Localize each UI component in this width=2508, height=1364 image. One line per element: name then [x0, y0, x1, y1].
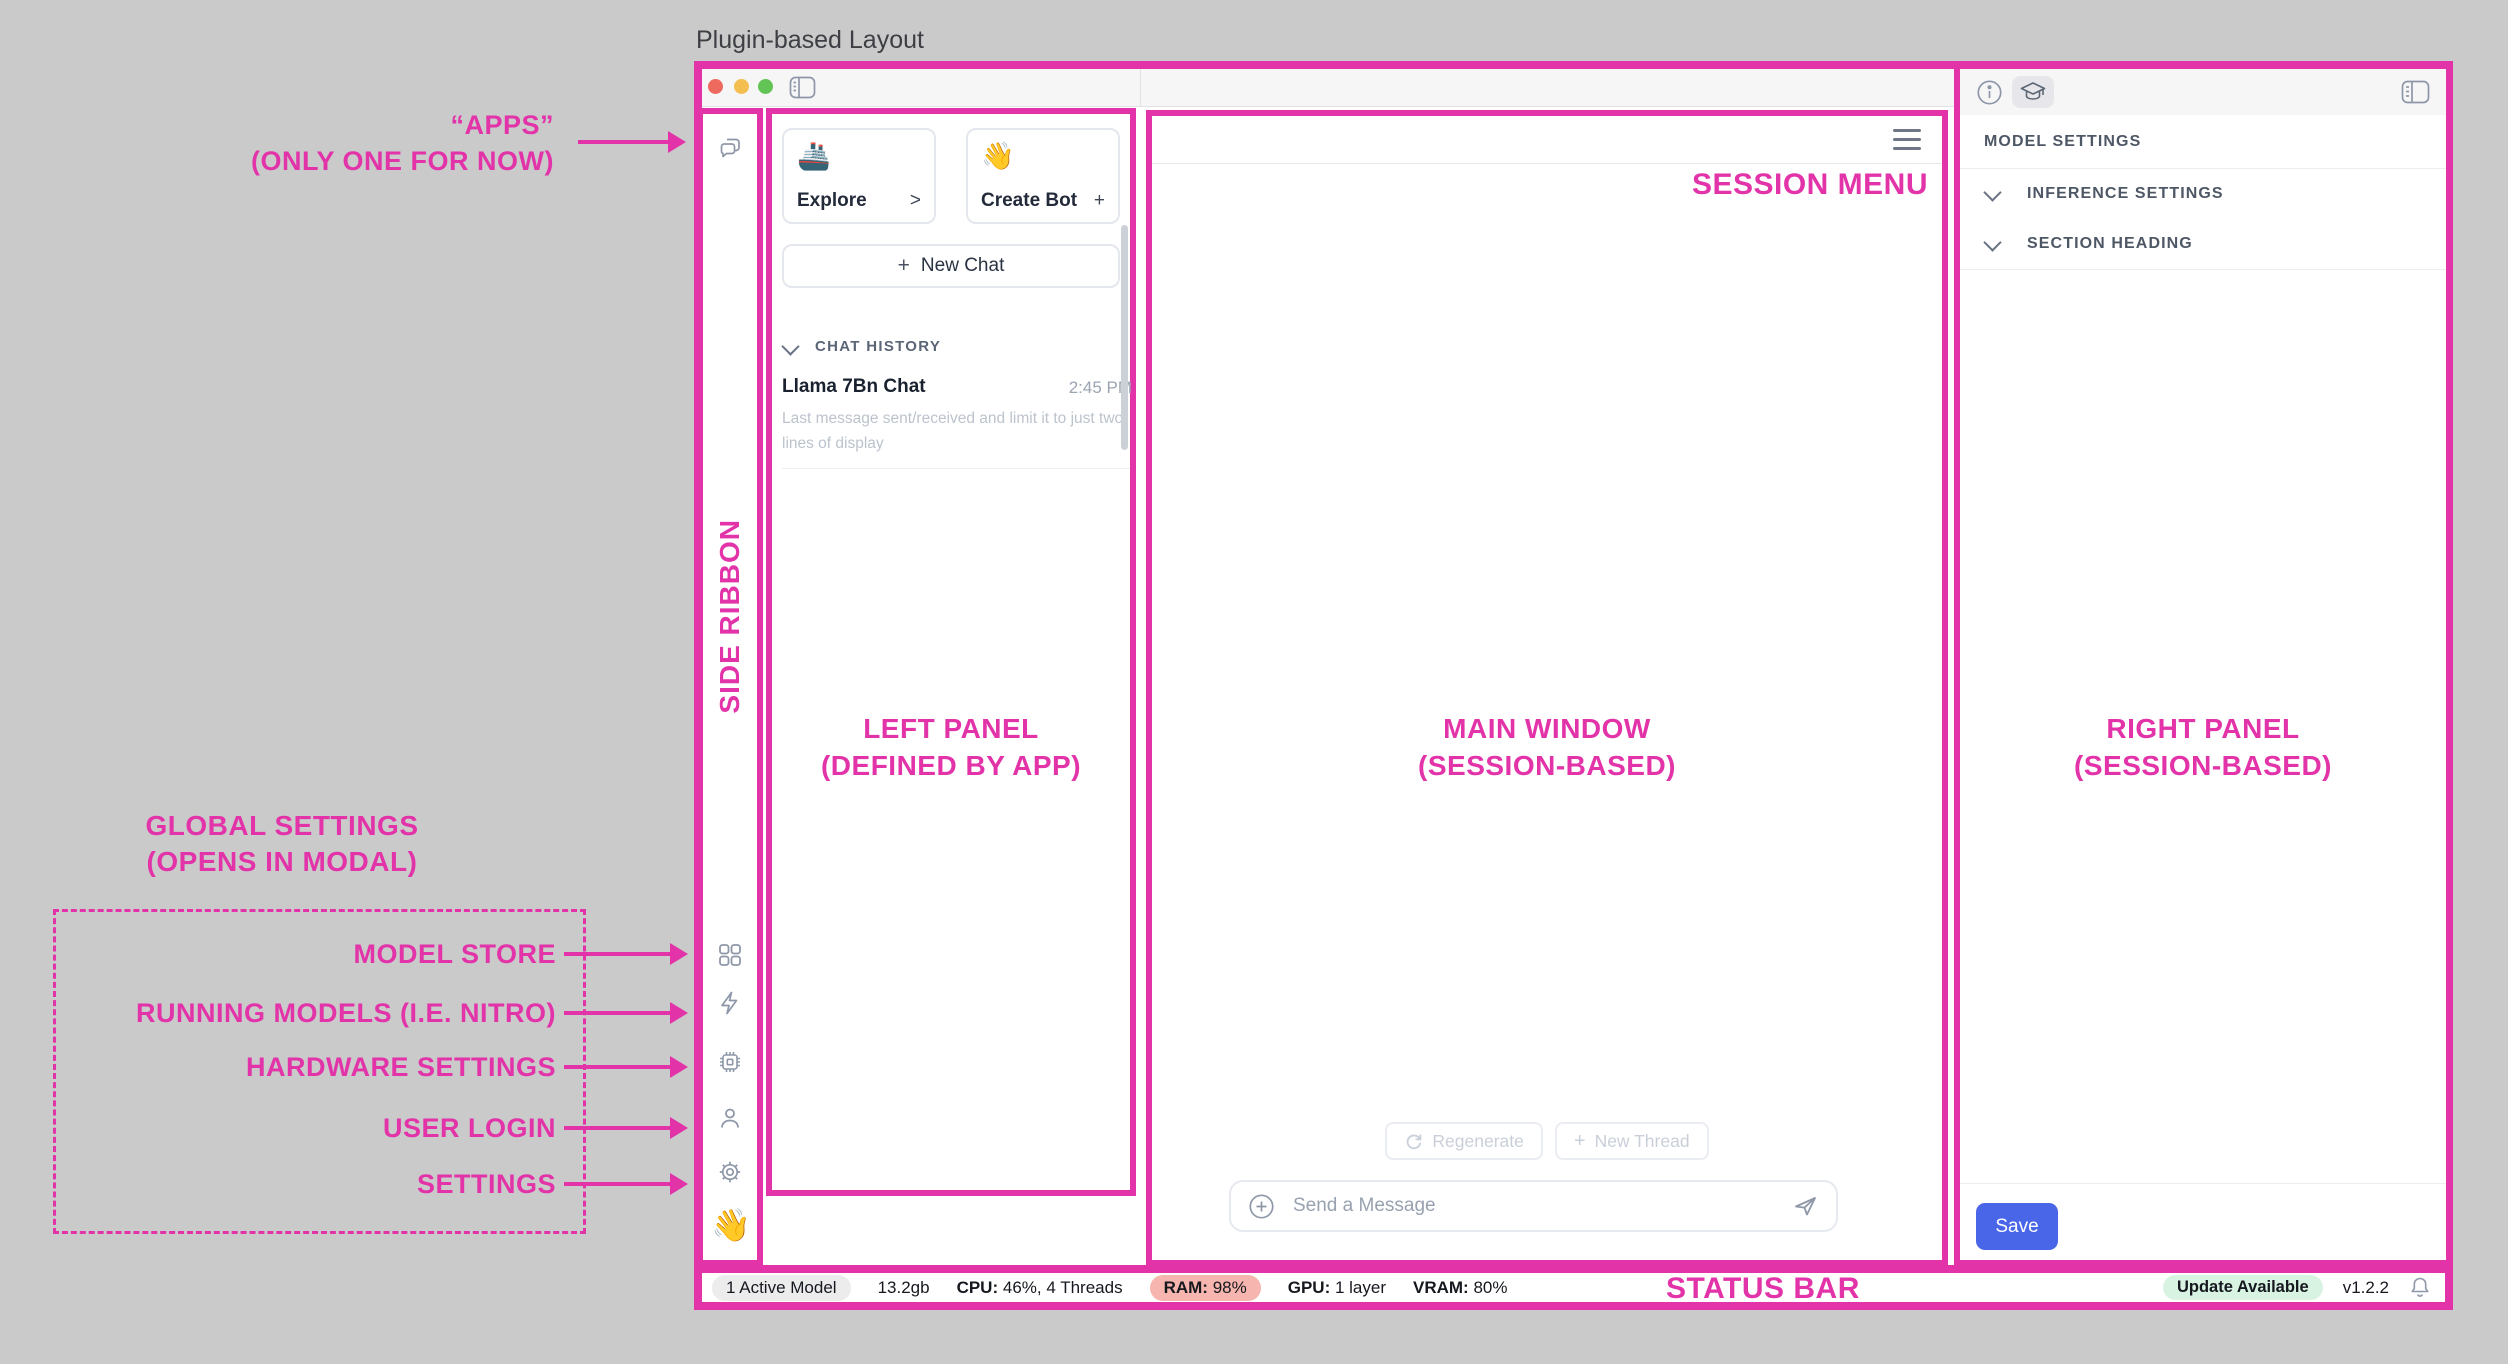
annotation-arrow-head — [670, 1117, 688, 1139]
graduation-cap-icon — [2019, 80, 2047, 104]
annotation-arrow-head — [670, 1056, 688, 1078]
app-window: SIDE RIBBON — [694, 61, 2453, 1310]
divider — [1960, 1183, 2446, 1184]
running-models-annotation: RUNNING MODELS (I.E. NITRO) — [60, 996, 556, 1030]
main-window-annotation: MAIN WINDOW (SESSION-BASED) — [1152, 710, 1942, 784]
create-bot-card-plus: + — [1094, 190, 1105, 212]
annotation-arrow — [564, 1065, 672, 1069]
new-chat-button[interactable]: + New Chat — [782, 244, 1120, 288]
model-settings-tab[interactable] — [2012, 76, 2054, 108]
annotation-arrow — [564, 1011, 672, 1015]
annotated-mockup: Plugin-based Layout — [0, 0, 2508, 1364]
session-menu-bar — [1152, 116, 1942, 164]
annotation-arrow-head — [670, 943, 688, 965]
side-ribbon-annotation: SIDE RIBBON — [703, 502, 757, 730]
wave-emoji-icon: 👋 — [981, 140, 1105, 172]
section-heading-row[interactable]: SECTION HEADING — [1960, 219, 2446, 270]
model-settings-title: MODEL SETTINGS — [1984, 133, 2141, 151]
user-login-annotation: USER LOGIN — [60, 1111, 556, 1145]
settings-annotation: SETTINGS — [60, 1167, 556, 1201]
apps-annotation: “APPS” (ONLY ONE FOR NOW) — [150, 107, 554, 179]
chevron-down-icon — [781, 337, 799, 355]
chat-app-icon[interactable] — [717, 135, 743, 161]
annotation-arrow-head — [670, 1173, 688, 1195]
create-bot-card[interactable]: 👋 Create Bot + — [966, 128, 1120, 224]
traffic-close-button[interactable] — [708, 79, 723, 94]
gpu-stat: GPU: 1 layer — [1288, 1278, 1386, 1298]
plus-icon: + — [898, 254, 910, 278]
annotation-arrow-head — [670, 1002, 688, 1024]
apps-arrow — [578, 140, 670, 144]
traffic-zoom-button[interactable] — [758, 79, 773, 94]
cpu-stat: CPU: 46%, 4 Threads — [957, 1278, 1123, 1298]
inference-settings-label: INFERENCE SETTINGS — [2027, 185, 2224, 203]
plus-icon: + — [1574, 1130, 1586, 1153]
message-input[interactable] — [1291, 1194, 1775, 1218]
vram-stat: VRAM: 80% — [1413, 1278, 1507, 1298]
session-menu-annotation: SESSION MENU — [1692, 168, 1928, 202]
right-panel-annotation: RIGHT PANEL (SESSION-BASED) — [1960, 710, 2446, 784]
section-heading-label: SECTION HEADING — [2027, 235, 2193, 253]
hamburger-menu-icon[interactable] — [1893, 129, 1921, 150]
info-icon[interactable] — [1976, 79, 2003, 106]
right-panel-header — [1960, 69, 2446, 116]
message-composer — [1229, 1180, 1838, 1232]
global-settings-annotation: GLOBAL SETTINGS (OPENS IN MODAL) — [104, 808, 460, 880]
model-store-icon[interactable] — [717, 942, 743, 968]
chevron-down-icon — [1983, 183, 2001, 201]
ship-emoji-icon: 🚢 — [797, 140, 921, 172]
new-thread-label: New Thread — [1595, 1131, 1690, 1152]
chat-list-item[interactable]: Llama 7Bn Chat 2:45 PM Last message sent… — [772, 366, 1142, 468]
chevron-down-icon — [1983, 233, 2001, 251]
annotation-arrow — [564, 952, 672, 956]
chat-history-label: CHAT HISTORY — [815, 338, 941, 355]
model-settings-section: MODEL SETTINGS — [1960, 115, 2446, 169]
left-panel-scrollbar[interactable] — [1121, 225, 1128, 450]
new-chat-label: New Chat — [921, 255, 1004, 277]
list-divider — [782, 468, 1130, 469]
chat-item-preview: Last message sent/received and limit it … — [782, 406, 1142, 456]
running-models-icon[interactable] — [717, 990, 743, 1016]
panel-toggle-icon[interactable] — [2401, 80, 2430, 104]
right-panel: MODEL SETTINGS INFERENCE SETTINGS SECTIO… — [1954, 63, 2452, 1266]
notifications-bell-icon[interactable] — [2409, 1276, 2431, 1300]
main-window: SESSION MENU MAIN WINDOW (SESSION-BASED)… — [1146, 110, 1948, 1266]
settings-gear-icon[interactable] — [717, 1159, 743, 1185]
ram-badge: RAM: 98% — [1150, 1275, 1261, 1301]
save-button[interactable]: Save — [1976, 1203, 2058, 1250]
explore-card-chevron: > — [910, 190, 921, 212]
regenerate-button[interactable]: Regenerate — [1385, 1122, 1542, 1160]
annotation-arrow — [564, 1182, 672, 1186]
chat-item-title: Llama 7Bn Chat — [782, 376, 926, 398]
traffic-minimize-button[interactable] — [734, 79, 749, 94]
attach-plus-icon[interactable] — [1248, 1193, 1275, 1220]
regenerate-label: Regenerate — [1432, 1131, 1523, 1152]
status-bar: 1 Active Model 13.2gb CPU: 46%, 4 Thread… — [702, 1273, 2445, 1302]
titlebar-divider — [1140, 69, 1141, 106]
app-version: v1.2.2 — [2343, 1278, 2389, 1298]
left-panel-annotation: LEFT PANEL (DEFINED BY APP) — [772, 710, 1130, 784]
create-bot-card-label: Create Bot — [981, 190, 1077, 212]
hardware-settings-icon[interactable] — [717, 1049, 743, 1075]
user-login-icon[interactable] — [717, 1105, 743, 1131]
page-title: Plugin-based Layout — [696, 26, 924, 55]
inference-settings-row[interactable]: INFERENCE SETTINGS — [1960, 169, 2446, 220]
explore-card[interactable]: 🚢 Explore > — [782, 128, 936, 224]
active-model-badge: 1 Active Model — [712, 1275, 851, 1301]
model-store-annotation: MODEL STORE — [60, 937, 556, 971]
status-bar-top-border — [694, 1265, 2453, 1273]
update-available-badge[interactable]: Update Available — [2163, 1275, 2323, 1300]
send-icon[interactable] — [1792, 1193, 1819, 1220]
new-thread-button[interactable]: + New Thread — [1555, 1122, 1709, 1160]
apps-arrow-head — [668, 131, 686, 153]
wave-app-icon[interactable]: 👋 — [709, 1206, 753, 1244]
annotation-arrow — [564, 1126, 672, 1130]
chat-history-header[interactable]: CHAT HISTORY — [784, 338, 941, 355]
sidebar-toggle-icon[interactable] — [789, 76, 816, 99]
left-panel: 🚢 Explore > 👋 Create Bot + + New Chat — [766, 108, 1136, 1196]
hardware-settings-annotation: HARDWARE SETTINGS — [60, 1050, 556, 1084]
side-ribbon: SIDE RIBBON — [697, 108, 763, 1266]
memory-usage: 13.2gb — [878, 1278, 930, 1298]
status-bar-annotation: STATUS BAR — [1666, 1272, 1860, 1306]
thread-actions: Regenerate + New Thread — [1152, 1122, 1942, 1160]
explore-card-label: Explore — [797, 190, 867, 212]
